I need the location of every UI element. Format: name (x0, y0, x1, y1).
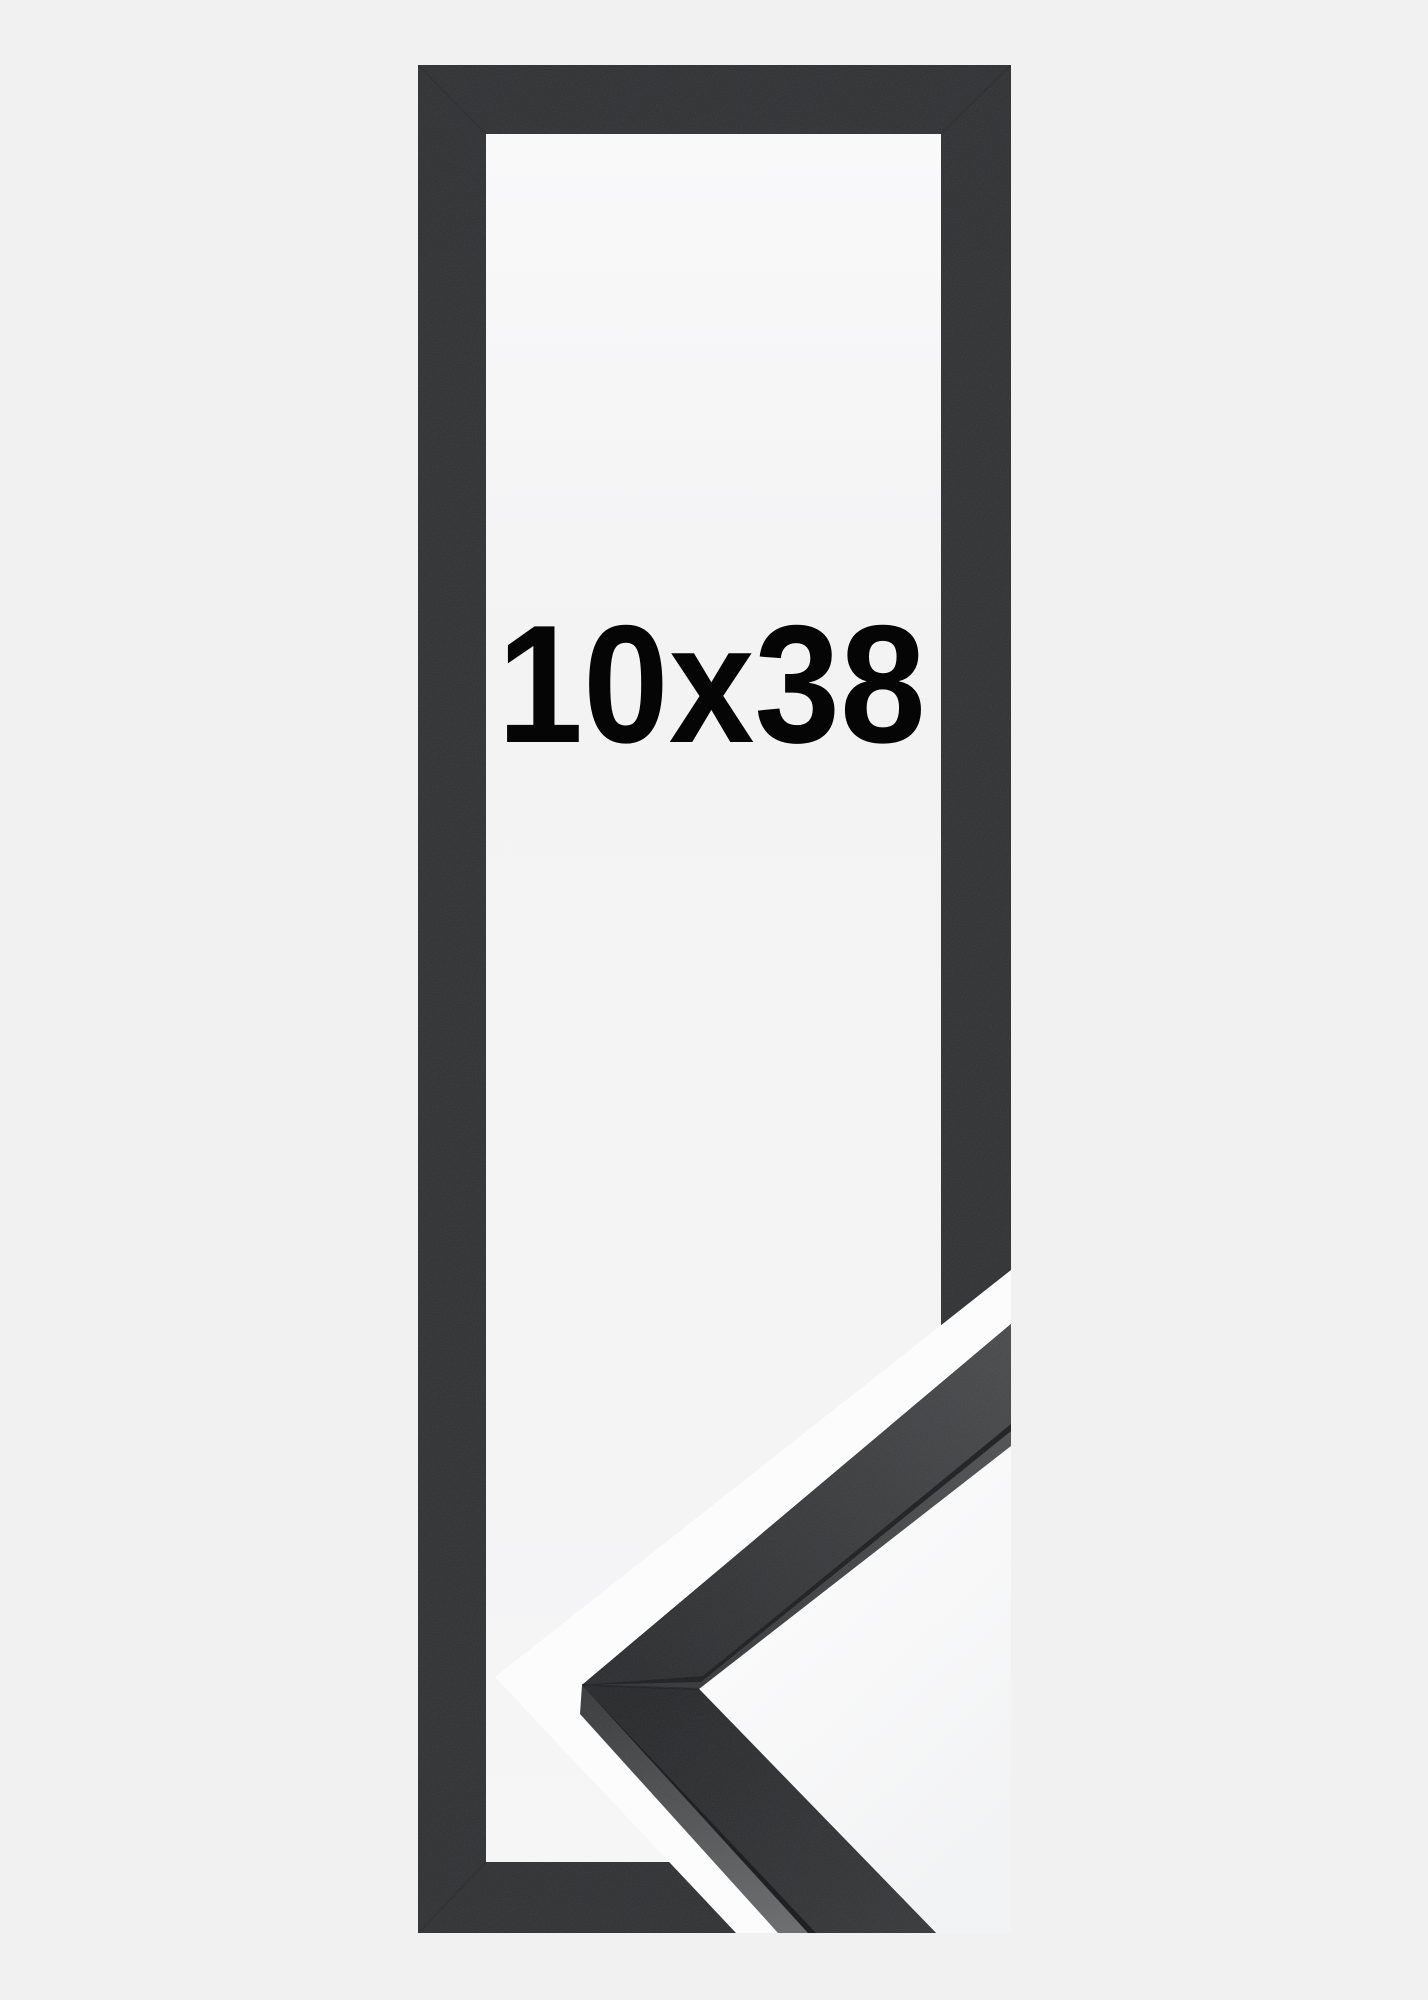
svg-text:10x38: 10x38 (497, 591, 925, 779)
